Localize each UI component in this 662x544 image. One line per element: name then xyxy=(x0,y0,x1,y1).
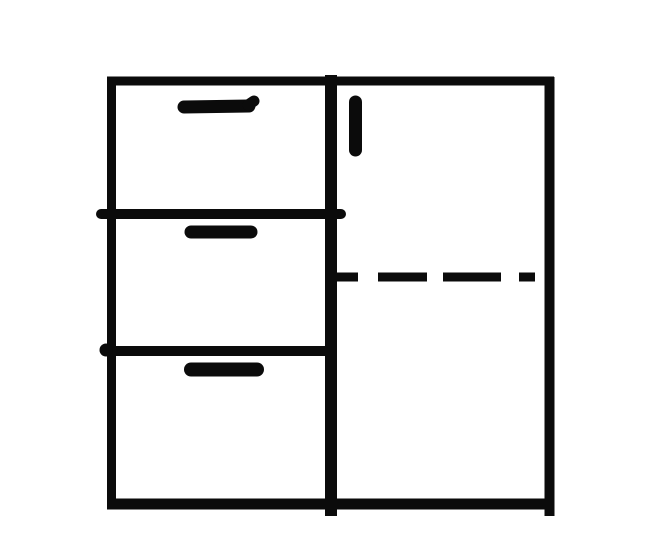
drawer-1-handle xyxy=(184,106,249,107)
cabinet-front-sketch xyxy=(0,0,662,544)
sketch-page xyxy=(0,0,662,544)
drawer-1-handle-tip xyxy=(248,101,254,105)
drawer-divider-2-left-dot xyxy=(100,344,113,357)
